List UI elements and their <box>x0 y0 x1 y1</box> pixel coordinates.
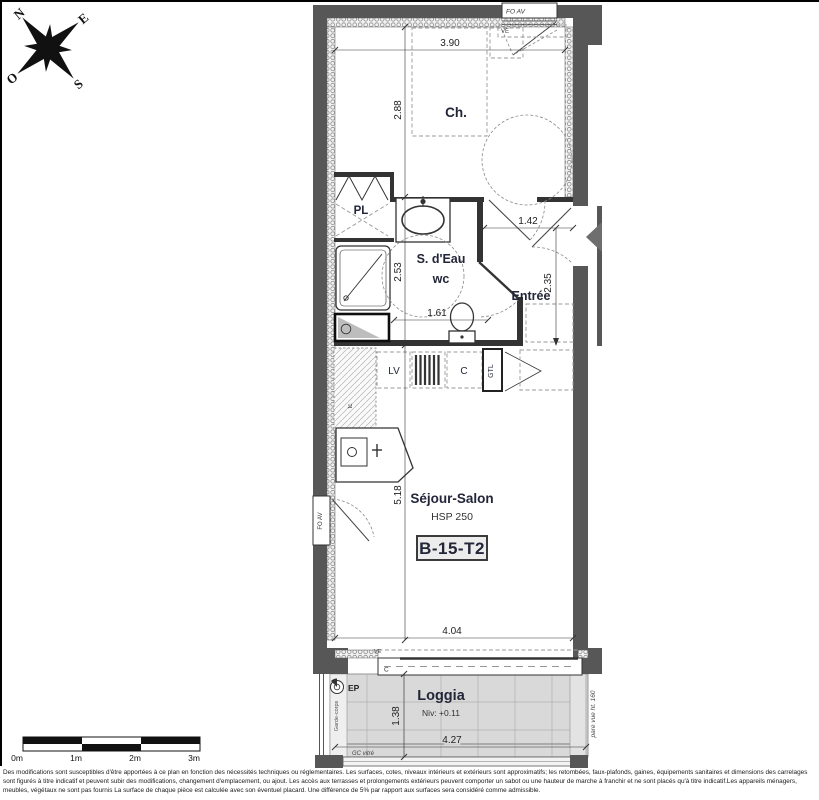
label-cooker: C <box>460 366 467 377</box>
label-bay-window: C <box>384 667 389 674</box>
insulation-bottom-left <box>335 650 378 658</box>
toilet-bowl <box>451 303 474 331</box>
gtl-door-swing <box>505 352 541 391</box>
entry-arrow-icon <box>586 222 602 252</box>
dim-loggia-height: 1.38 <box>391 706 402 726</box>
closet-folding-doors <box>336 176 388 200</box>
rail-post-right <box>570 755 588 768</box>
left-window-casement <box>332 499 369 541</box>
unit-code: B-15-T2 <box>419 539 485 558</box>
room-label-bedroom: Ch. <box>445 105 467 120</box>
compass-rose-icon: N E S O <box>0 0 122 123</box>
partition-bath-entry-upper <box>477 202 483 262</box>
left-window-swing-arc <box>332 499 374 537</box>
entry-door-leaf <box>532 208 571 247</box>
living-closet-outline <box>520 350 573 390</box>
room-label-living: Séjour-Salon <box>410 491 493 506</box>
fixtures <box>334 176 502 482</box>
compass-east: E <box>75 10 91 27</box>
partition-closet-bottom <box>334 238 394 242</box>
wall-right-lower <box>573 266 588 648</box>
rail-post-left <box>315 755 343 768</box>
scale-2m: 2m <box>129 753 141 763</box>
insulation-bottom-right <box>578 650 588 658</box>
label-ve-bottom: VE <box>374 649 382 655</box>
insulation-right <box>565 27 573 197</box>
wall-left-lower <box>313 545 327 648</box>
turning-circle-bedroom <box>482 115 572 205</box>
scale-seg-3 <box>82 744 141 751</box>
dim-loggia-width: 4.27 <box>442 735 462 746</box>
washbasin <box>402 206 444 234</box>
label-fo-av-top: FO AV <box>506 9 526 16</box>
living-ceiling-height: HSP 250 <box>431 511 473 523</box>
compass-north: N <box>11 4 28 22</box>
room-label-wc: wc <box>432 272 450 286</box>
wall-left-upper <box>313 18 327 496</box>
partition-bedroom-entry-stub <box>537 197 573 202</box>
entry-closet-outline <box>526 304 573 342</box>
scale-1m: 1m <box>70 753 82 763</box>
partition-bath-entry-lower <box>517 297 523 345</box>
floorplan-drawing: N E S O <box>0 0 819 800</box>
room-label-shower: S. d'Eau <box>417 252 466 266</box>
label-fo-av-left: FO AV <box>318 512 324 529</box>
label-ve-top: VE <box>501 29 509 35</box>
disclaimer-text: Des modifications sont susceptibles d'êt… <box>3 769 816 796</box>
dim-top-width: 3.90 <box>440 38 460 49</box>
toilet-flush <box>460 335 463 338</box>
label-dishwasher: LV <box>388 366 400 377</box>
scale-0m: 0m <box>11 753 23 763</box>
kitchen-worktop-hatch <box>334 348 376 430</box>
loggia-level: Niv: +0.11 <box>422 708 460 718</box>
label-ep: EP <box>348 683 360 693</box>
room-label-entry: Entrée <box>512 289 551 303</box>
label-gtl: GTL <box>488 364 495 378</box>
unit-badge: B-15-T2 <box>417 536 487 560</box>
wall-right-upper <box>573 18 588 206</box>
dim-entry-width: 1.42 <box>518 216 538 227</box>
wall-top-corner-block <box>588 5 602 45</box>
scale-seg-2 <box>141 737 200 744</box>
dim-shower-height: 2.53 <box>393 262 404 282</box>
dim-living-width: 4.04 <box>442 626 462 637</box>
label-tc: tc <box>347 403 354 409</box>
insulation-top <box>327 18 565 27</box>
loggia-privacy-screen-strip <box>570 674 586 757</box>
floorplan-page: N E S O <box>0 0 819 800</box>
wall-top-left <box>313 5 502 18</box>
scale-3m: 3m <box>188 753 200 763</box>
dim-wc-width: 1.61 <box>427 308 447 319</box>
compass-south: S <box>71 76 86 92</box>
top-window-ve-right <box>513 30 557 55</box>
partition-bedroom-closet <box>334 172 394 177</box>
compass-west: O <box>3 69 20 87</box>
label-garde-corps: Garde-corps <box>334 700 340 731</box>
partition-jog <box>390 172 394 202</box>
dim-bedroom-height: 2.88 <box>393 100 404 120</box>
entry-door-swing-arc <box>532 247 572 263</box>
label-gc-vitre: GC vitré <box>352 751 375 757</box>
label-pare-vue: pare vue ht. 160 <box>590 690 597 738</box>
room-label-loggia: Loggia <box>417 688 465 704</box>
room-label-closet: PL <box>354 205 369 217</box>
fridge-coil-stripes <box>416 355 439 385</box>
dim-living-height: 5.18 <box>393 485 404 505</box>
kitchen-sink-unit <box>336 428 413 482</box>
scale-seg-1 <box>23 737 82 744</box>
scale-bar: 0m 1m 2m 3m <box>11 737 200 763</box>
